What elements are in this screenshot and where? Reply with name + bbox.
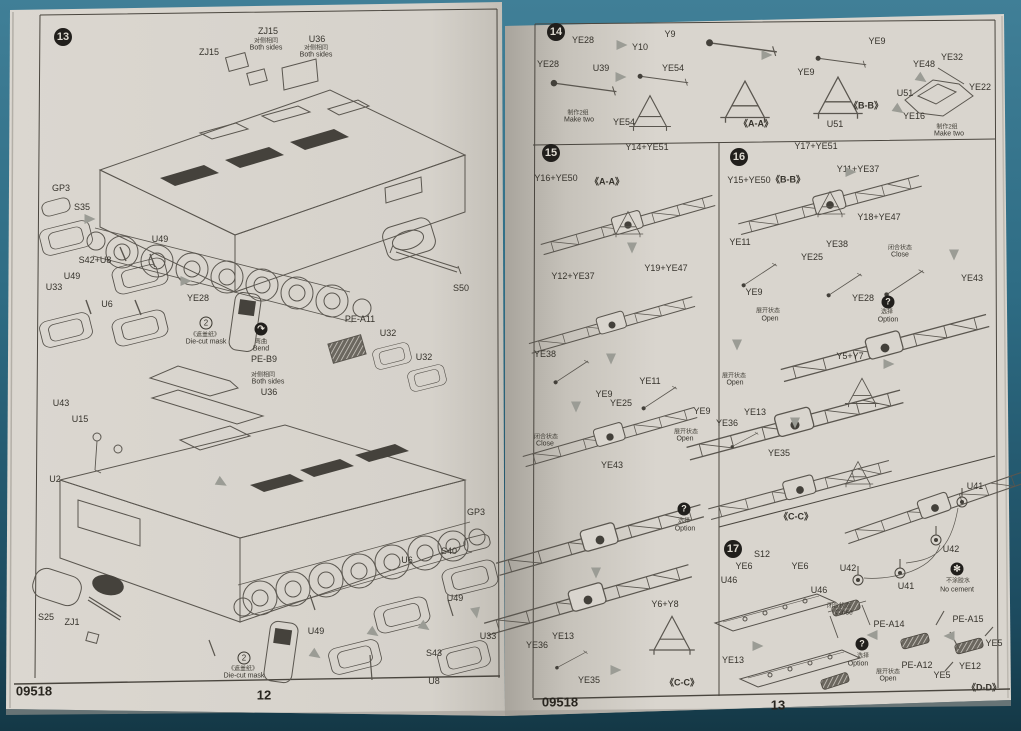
note-label: 展开状态 (722, 371, 746, 380)
part-label: Y14+YE51 (625, 142, 668, 152)
part-label: YE28 (852, 293, 874, 303)
part-label: Y11+YE37 (837, 164, 880, 174)
note-label: Die-cut mask (224, 673, 265, 680)
direction-arrow-icon (606, 354, 616, 365)
part-label: U49 (308, 626, 325, 636)
note-label: 闭合状态 (534, 432, 558, 441)
part-label: Y9 (664, 29, 675, 39)
part-label: YE11 (729, 237, 750, 247)
part-label: U51 (827, 119, 844, 129)
part-label: U41 (967, 481, 984, 491)
note-label: Bend (253, 346, 269, 353)
part-label: Y19+YE47 (644, 263, 687, 273)
direction-arrow-icon (949, 250, 959, 261)
part-label: U43 (53, 398, 70, 408)
part-label: U51 (897, 88, 914, 98)
part-label: Y15+YE50 (727, 175, 770, 185)
direction-arrow-icon (884, 359, 895, 369)
direction-arrow-icon (309, 648, 324, 663)
part-label: PE-B9 (251, 354, 277, 364)
note-label: 对侧相同 (304, 43, 328, 52)
note-label: 展开状态 (756, 306, 780, 315)
part-label: U8 (428, 676, 440, 686)
part-label: U46 (811, 585, 828, 595)
note-label: Make two (564, 117, 594, 124)
footer-page-number: 12 (257, 688, 271, 703)
section-ref-label: 《A-A》 (739, 117, 773, 130)
no-cement-icon: ✻ (951, 563, 964, 576)
note-label: Option (675, 526, 696, 533)
part-label: Y12+YE37 (551, 271, 594, 281)
part-label: Y10 (632, 42, 648, 52)
part-label: YE5 (985, 638, 1002, 648)
direction-arrow-icon (762, 50, 773, 60)
note-label: 制作2组 (936, 122, 957, 131)
direction-arrow-icon (215, 476, 230, 490)
note-label: Close (835, 610, 853, 617)
part-label: GP3 (52, 183, 70, 193)
footer-product-code: 09518 (542, 695, 578, 710)
part-label: YE43 (601, 460, 623, 470)
part-label: PE-A15 (952, 614, 983, 624)
part-label: U49 (152, 234, 169, 244)
note-label: Make two (934, 131, 964, 138)
part-label: U6 (401, 555, 413, 565)
part-label: S12 (754, 549, 770, 559)
part-label: Y5+Y7 (836, 351, 863, 361)
note-label: Both sides (252, 379, 285, 386)
part-label: YE9 (868, 36, 885, 46)
part-label: PE-A12 (901, 660, 932, 670)
direction-arrow-icon (732, 340, 742, 351)
part-label: YE38 (534, 349, 556, 359)
part-label: S42+U8 (79, 255, 112, 265)
part-label: U33 (480, 631, 497, 641)
part-label: U39 (593, 63, 610, 73)
part-label: ZJ1 (64, 617, 79, 627)
direction-arrow-icon (753, 641, 764, 651)
part-label: S50 (453, 283, 469, 293)
note-label: 弯曲 (255, 337, 267, 346)
part-label: U49 (64, 271, 81, 281)
direction-arrow-icon (571, 402, 581, 413)
direction-arrow-icon (85, 214, 96, 224)
part-label: Y18+YE47 (857, 212, 900, 222)
part-label: U15 (72, 414, 89, 424)
note-label: 《遮盖纸》 (190, 330, 220, 339)
part-label: U46 (721, 575, 738, 585)
part-label: YE9 (693, 406, 710, 416)
note-label: Option (848, 661, 869, 668)
step-14-badge: 14 (547, 23, 565, 41)
die-cut-mask-2-icon: 2 (200, 317, 213, 330)
note-label: 展开状态 (674, 427, 698, 436)
note-label: Close (536, 441, 554, 448)
note-label: 选择 (857, 651, 869, 660)
part-label: ZJ15 (199, 47, 219, 57)
direction-arrow-icon (627, 243, 637, 254)
direction-arrow-icon (617, 40, 628, 50)
section-ref-label: 《C-C》 (779, 510, 813, 523)
note-label: 制作2组 (567, 108, 588, 117)
direction-arrow-icon (418, 620, 433, 635)
part-label: YE32 (941, 52, 963, 62)
option-icon: ? (882, 296, 895, 309)
part-label: U42 (943, 544, 960, 554)
part-label: S43 (426, 648, 442, 658)
part-label: YE35 (768, 448, 790, 458)
part-label: YE38 (826, 239, 848, 249)
note-label: Open (676, 436, 693, 443)
part-label: YE25 (610, 398, 632, 408)
part-label: U49 (447, 593, 464, 603)
note-label: Both sides (300, 52, 333, 59)
part-label: YE11 (639, 376, 660, 386)
part-label: YE28 (572, 35, 594, 45)
part-label: YE43 (961, 273, 983, 283)
part-label: S35 (74, 202, 90, 212)
section-ref-label: 《A-A》 (590, 175, 624, 188)
part-label: YE16 (903, 111, 925, 121)
note-label: Option (878, 317, 899, 324)
option-icon: ? (678, 503, 691, 516)
step-16-badge: 16 (730, 148, 748, 166)
part-label: ZJ15 (258, 26, 278, 36)
part-label: U33 (46, 282, 63, 292)
part-label: PE-A14 (873, 619, 904, 629)
part-label: YE13 (552, 631, 574, 641)
part-label: YE13 (722, 655, 744, 665)
part-label: YE13 (744, 407, 766, 417)
note-label: Open (879, 676, 896, 683)
die-cut-mask-2-icon: 2 (238, 652, 251, 665)
direction-arrow-icon (867, 630, 878, 640)
part-label: YE22 (969, 82, 991, 92)
note-label: Open (761, 316, 778, 323)
note-label: 不涂胶水 (946, 576, 970, 585)
part-label: Y6+Y8 (651, 599, 678, 609)
note-label: Open (726, 380, 743, 387)
part-label: U2 (49, 474, 61, 484)
direction-arrow-icon (616, 72, 627, 82)
part-label: U41 (898, 581, 915, 591)
part-label: YE12 (959, 661, 981, 671)
note-label: 《遮盖纸》 (228, 664, 258, 673)
part-label: YE9 (797, 67, 814, 77)
part-label: YE6 (791, 561, 808, 571)
direction-arrow-icon (367, 626, 382, 641)
note-label: 选择 (678, 516, 690, 525)
part-label: YE36 (526, 640, 548, 650)
part-label: YE54 (662, 63, 684, 73)
section-ref-label: 《C-C》 (665, 676, 699, 689)
note-label: 对侧相同 (254, 36, 278, 45)
part-label: U36 (261, 387, 278, 397)
note-label: 展开状态 (876, 667, 900, 676)
part-label: YE48 (913, 59, 935, 69)
section-ref-label: 《D-D》 (967, 681, 1001, 694)
part-label: U42 (840, 563, 857, 573)
part-label: U32 (380, 328, 397, 338)
labels-overlay: ZJ15ZJ15对侧相同Both sidesU36对侧相同Both sidesG… (0, 0, 1021, 731)
part-label: YE35 (578, 675, 600, 685)
section-ref-label: 《B-B》 (771, 173, 805, 186)
part-label: YE28 (187, 293, 209, 303)
bend-icon: ↷ (255, 323, 268, 336)
note-label: 对侧相同 (251, 370, 275, 379)
direction-arrow-icon (944, 631, 955, 641)
part-label: YE54 (613, 117, 635, 127)
direction-arrow-icon (591, 568, 601, 579)
part-label: U32 (416, 352, 433, 362)
note-label: No cement (940, 587, 974, 594)
section-ref-label: 《B-B》 (849, 99, 883, 112)
part-label: S40 (441, 546, 457, 556)
part-label: S25 (38, 612, 54, 622)
step-17-badge: 17 (724, 540, 742, 558)
direction-arrow-icon (611, 665, 622, 675)
part-label: Y17+YE51 (794, 141, 837, 151)
direction-arrow-icon (470, 607, 482, 620)
direction-arrow-icon (915, 72, 930, 87)
part-label: YE9 (745, 287, 762, 297)
part-label: PE-A11 (345, 314, 375, 324)
note-label: Both sides (250, 45, 283, 52)
part-label: YE36 (716, 418, 738, 428)
part-label: YE5 (933, 670, 950, 680)
step-13-badge: 13 (54, 28, 72, 46)
note-label: 闭合状态 (888, 243, 912, 252)
instruction-booklet-photo: ZJ15ZJ15对侧相同Both sidesU36对侧相同Both sidesG… (0, 0, 1021, 731)
part-label: GP3 (467, 507, 485, 517)
footer-page-number: 13 (771, 698, 785, 713)
part-label: YE6 (735, 561, 752, 571)
part-label: YE28 (537, 59, 559, 69)
direction-arrow-icon (846, 167, 857, 177)
note-label: Close (891, 252, 909, 259)
part-label: Y16+YE50 (534, 173, 577, 183)
note-label: Die-cut mask (186, 339, 227, 346)
part-label: YE25 (801, 252, 823, 262)
footer-product-code: 09518 (16, 684, 52, 699)
note-label: 闭合状态 (827, 601, 851, 610)
part-label: U6 (101, 299, 113, 309)
step-15-badge: 15 (542, 144, 560, 162)
direction-arrow-icon (790, 418, 800, 429)
direction-arrow-icon (181, 276, 192, 286)
